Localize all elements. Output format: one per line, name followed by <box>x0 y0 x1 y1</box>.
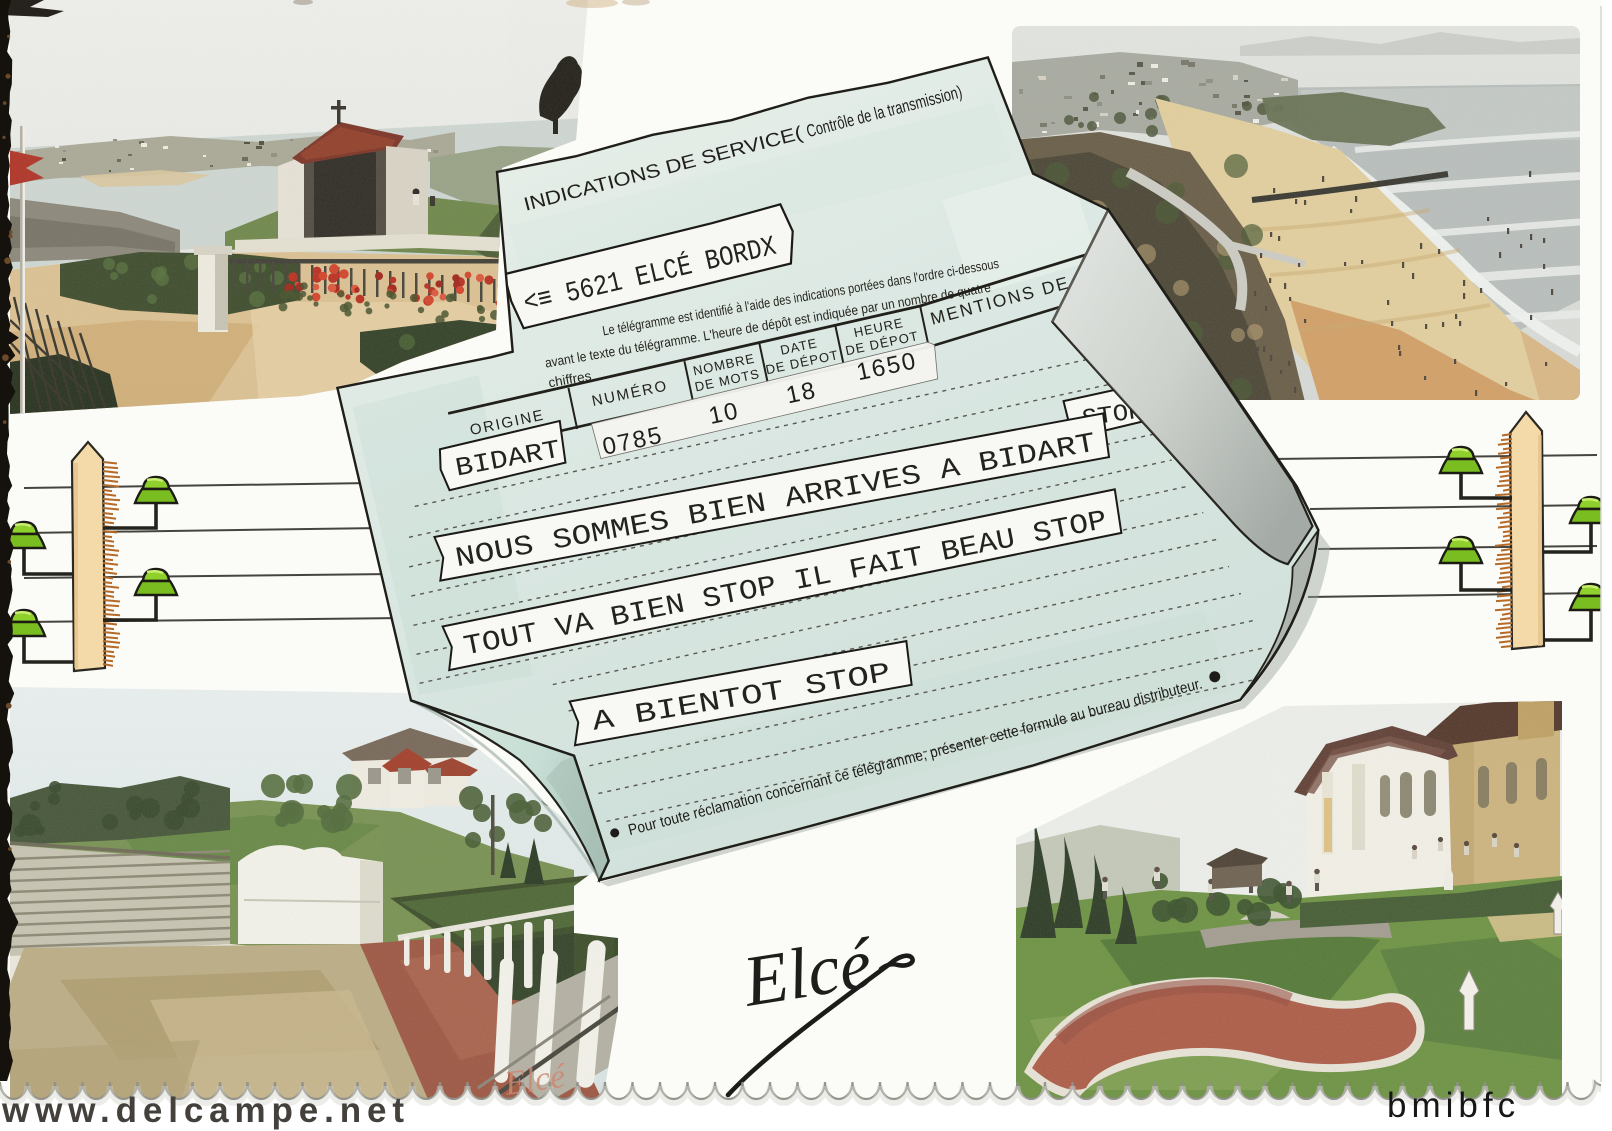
svg-text:www.delcampe.net: www.delcampe.net <box>1 1091 404 1130</box>
svg-text:bmibfc: bmibfc <box>1387 1086 1520 1125</box>
